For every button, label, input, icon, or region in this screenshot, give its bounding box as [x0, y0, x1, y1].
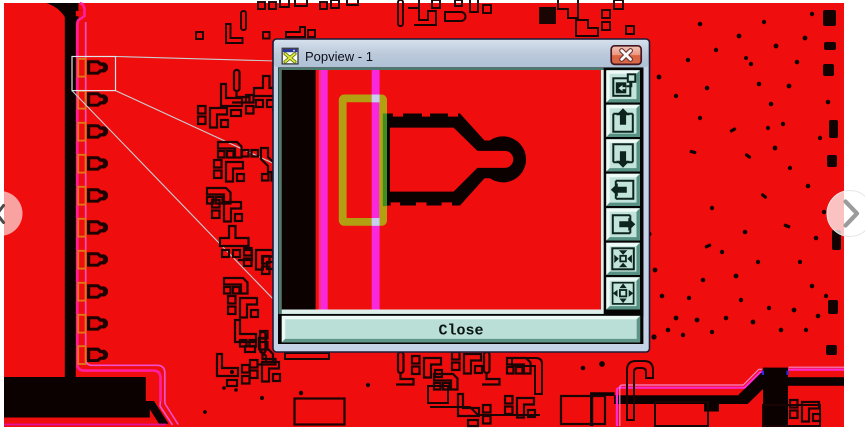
svg-text:Popview - 1: Popview - 1 — [305, 49, 373, 64]
svg-text:Close: Close — [438, 323, 483, 340]
